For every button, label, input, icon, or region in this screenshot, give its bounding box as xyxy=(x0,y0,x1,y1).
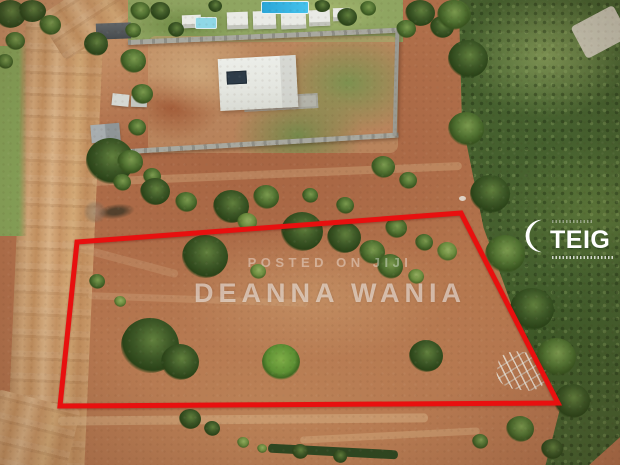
logo-small-text-top xyxy=(552,220,592,223)
boundary-polygon xyxy=(60,213,558,406)
logo-wordmark: TEIG xyxy=(550,226,610,255)
teig-logo: TEIG xyxy=(522,204,620,272)
logo-tagline xyxy=(552,256,614,259)
listing-photo: POSTED ON JIJI DEANNA WANIA TEIG xyxy=(0,0,620,465)
